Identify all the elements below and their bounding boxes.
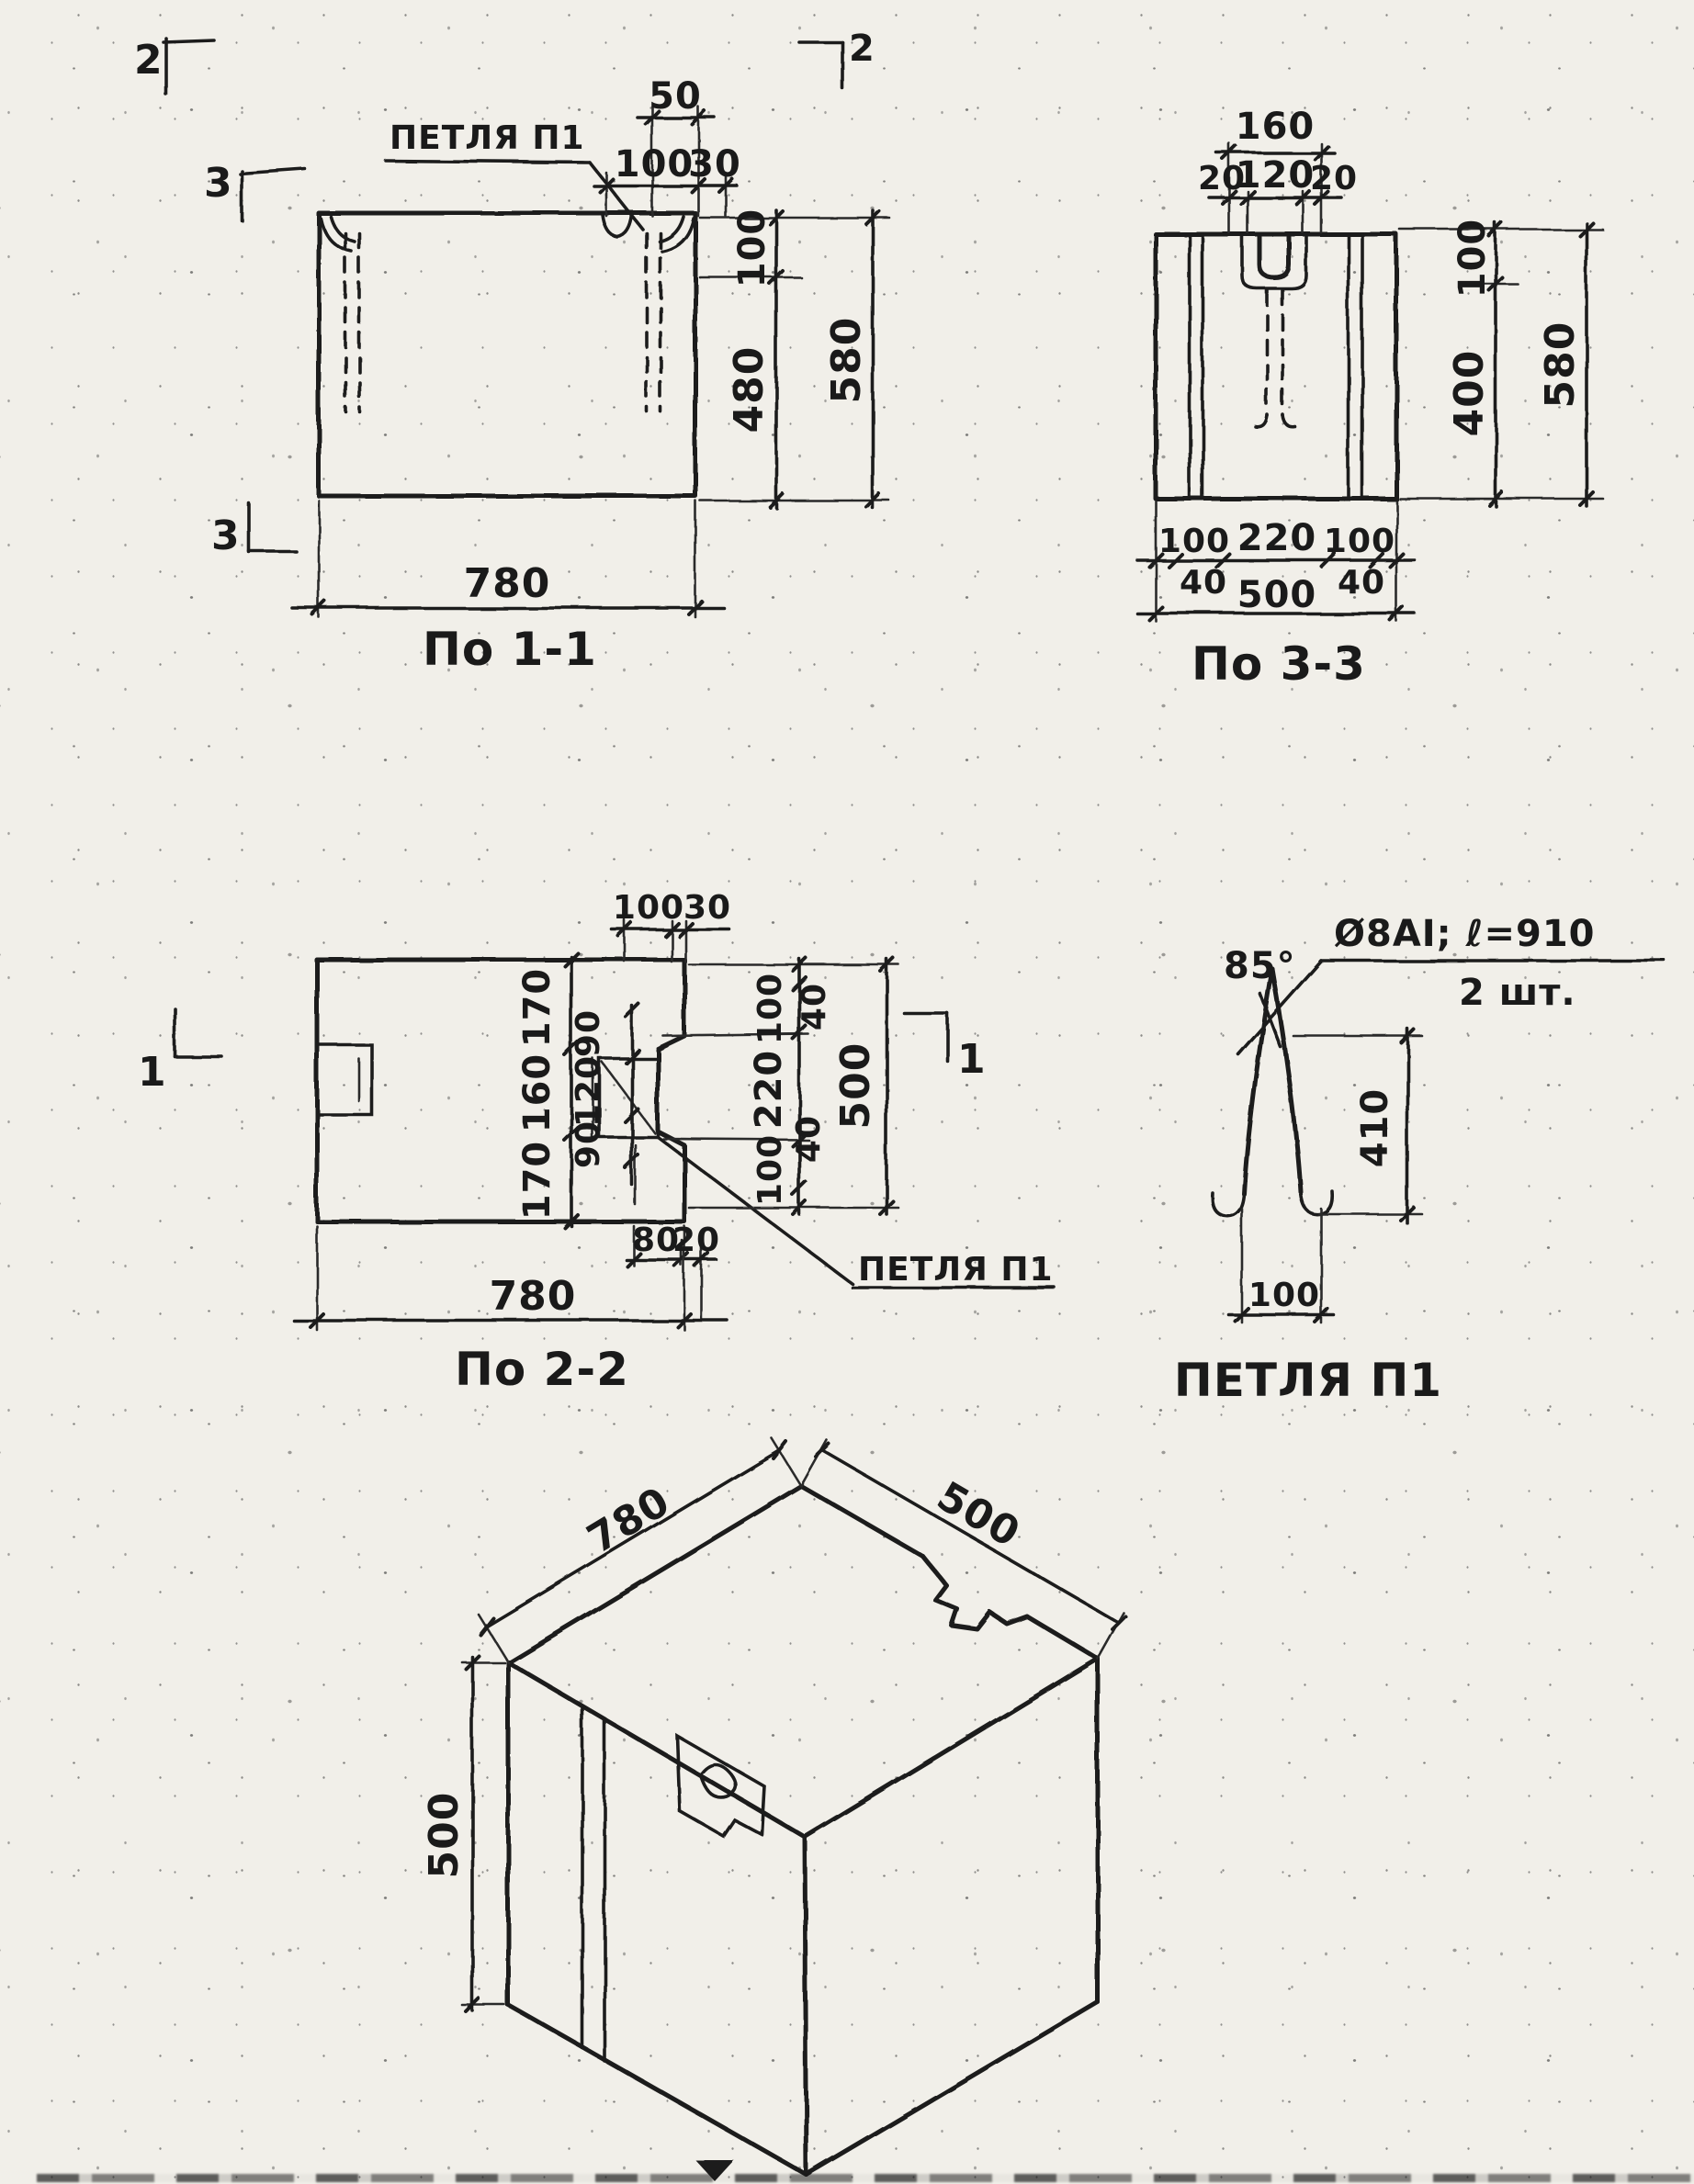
petlya-p1-callout-2-2: ПЕТЛЯ П1 [858,1251,1054,1289]
marker-2-left: 2 [134,37,164,84]
dim-580: 580 [823,317,870,404]
loop-detail-title: ПЕТЛЯ П1 [1174,1354,1442,1407]
dim-120: 120 [1236,154,1316,197]
dim-120-22: 120 [570,1055,607,1127]
dim-160-22: 160 [516,1053,559,1133]
dim-780-22: 780 [490,1273,577,1320]
dim-100-loop: 100 [1248,1277,1320,1314]
rebar-qty: 2 шт. [1459,972,1576,1014]
view-2-2-title: По 2-2 [455,1343,629,1396]
view-1-1-linework [292,107,889,617]
drawing-canvas: 2 2 3 3 1 1 [0,0,1694,2184]
dim-100-bottom-right: 100 [1324,523,1395,560]
dim-90-b: 90 [570,1120,607,1168]
iso-dim-780: 780 [580,1478,679,1563]
scan-artifact-smudge [37,2174,1694,2182]
dim-160: 160 [1236,106,1316,148]
dim-20-right: 20 [1310,160,1358,197]
dim-40-right: 40 [1338,564,1385,602]
dim-40-left: 40 [1180,564,1227,602]
rebar-spec: Ø8АI; ℓ=910 [1334,913,1595,955]
marker-1-left: 1 [138,1049,167,1096]
dim-40-b: 40 [790,1115,828,1163]
dim-500-right: 500 [832,1042,879,1130]
dim-220: 220 [1237,517,1317,559]
dim-480: 480 [726,346,773,433]
dim-90-a: 90 [570,1009,607,1057]
dim-100-bottom-left: 100 [1158,523,1230,560]
isometric-linework [462,1438,1125,2181]
dim-40-a: 40 [796,983,833,1030]
view-1-1-title: По 1-1 [423,623,597,676]
dim-400: 400 [1446,350,1493,437]
dim-780: 780 [464,560,551,607]
petlya-p1-callout-1-1: ПЕТЛЯ П1 [390,119,585,157]
marker-3-top: 3 [204,160,233,207]
marker-2-right: 2 [849,28,875,70]
dim-30-top-22: 30 [683,889,731,927]
dim-580-33: 580 [1537,321,1584,409]
dim-20-22: 20 [672,1221,720,1259]
marker-3-bottom: 3 [211,512,241,559]
marker-1-right: 1 [957,1036,987,1083]
dim-30: 30 [688,143,741,186]
view-3-3-title: По 3-3 [1191,637,1366,691]
dim-500-bottom: 500 [1237,574,1317,616]
dim-100-top: 100 [615,143,695,186]
iso-dim-500-height: 500 [421,1792,468,1879]
scanned-blueprint-page: 2 2 3 3 1 1 [0,0,1694,2184]
dim-100-right-a: 100 [751,973,789,1044]
dim-410: 410 [1354,1088,1396,1168]
dim-50: 50 [649,75,702,118]
iso-dim-500-width: 500 [929,1473,1028,1558]
dim-100-right: 100 [731,208,774,288]
dim-170-b: 170 [516,1141,559,1221]
dim-100-right-b: 100 [751,1134,789,1206]
loop-detail-linework [1213,961,1665,1323]
angle-label: 85° [1224,945,1296,987]
dim-100-right-33: 100 [1451,219,1494,298]
dim-170-a: 170 [516,968,559,1048]
section-cut-markers [164,39,948,1062]
dim-100-top-22: 100 [613,889,684,927]
dim-220-22: 220 [748,1050,790,1130]
